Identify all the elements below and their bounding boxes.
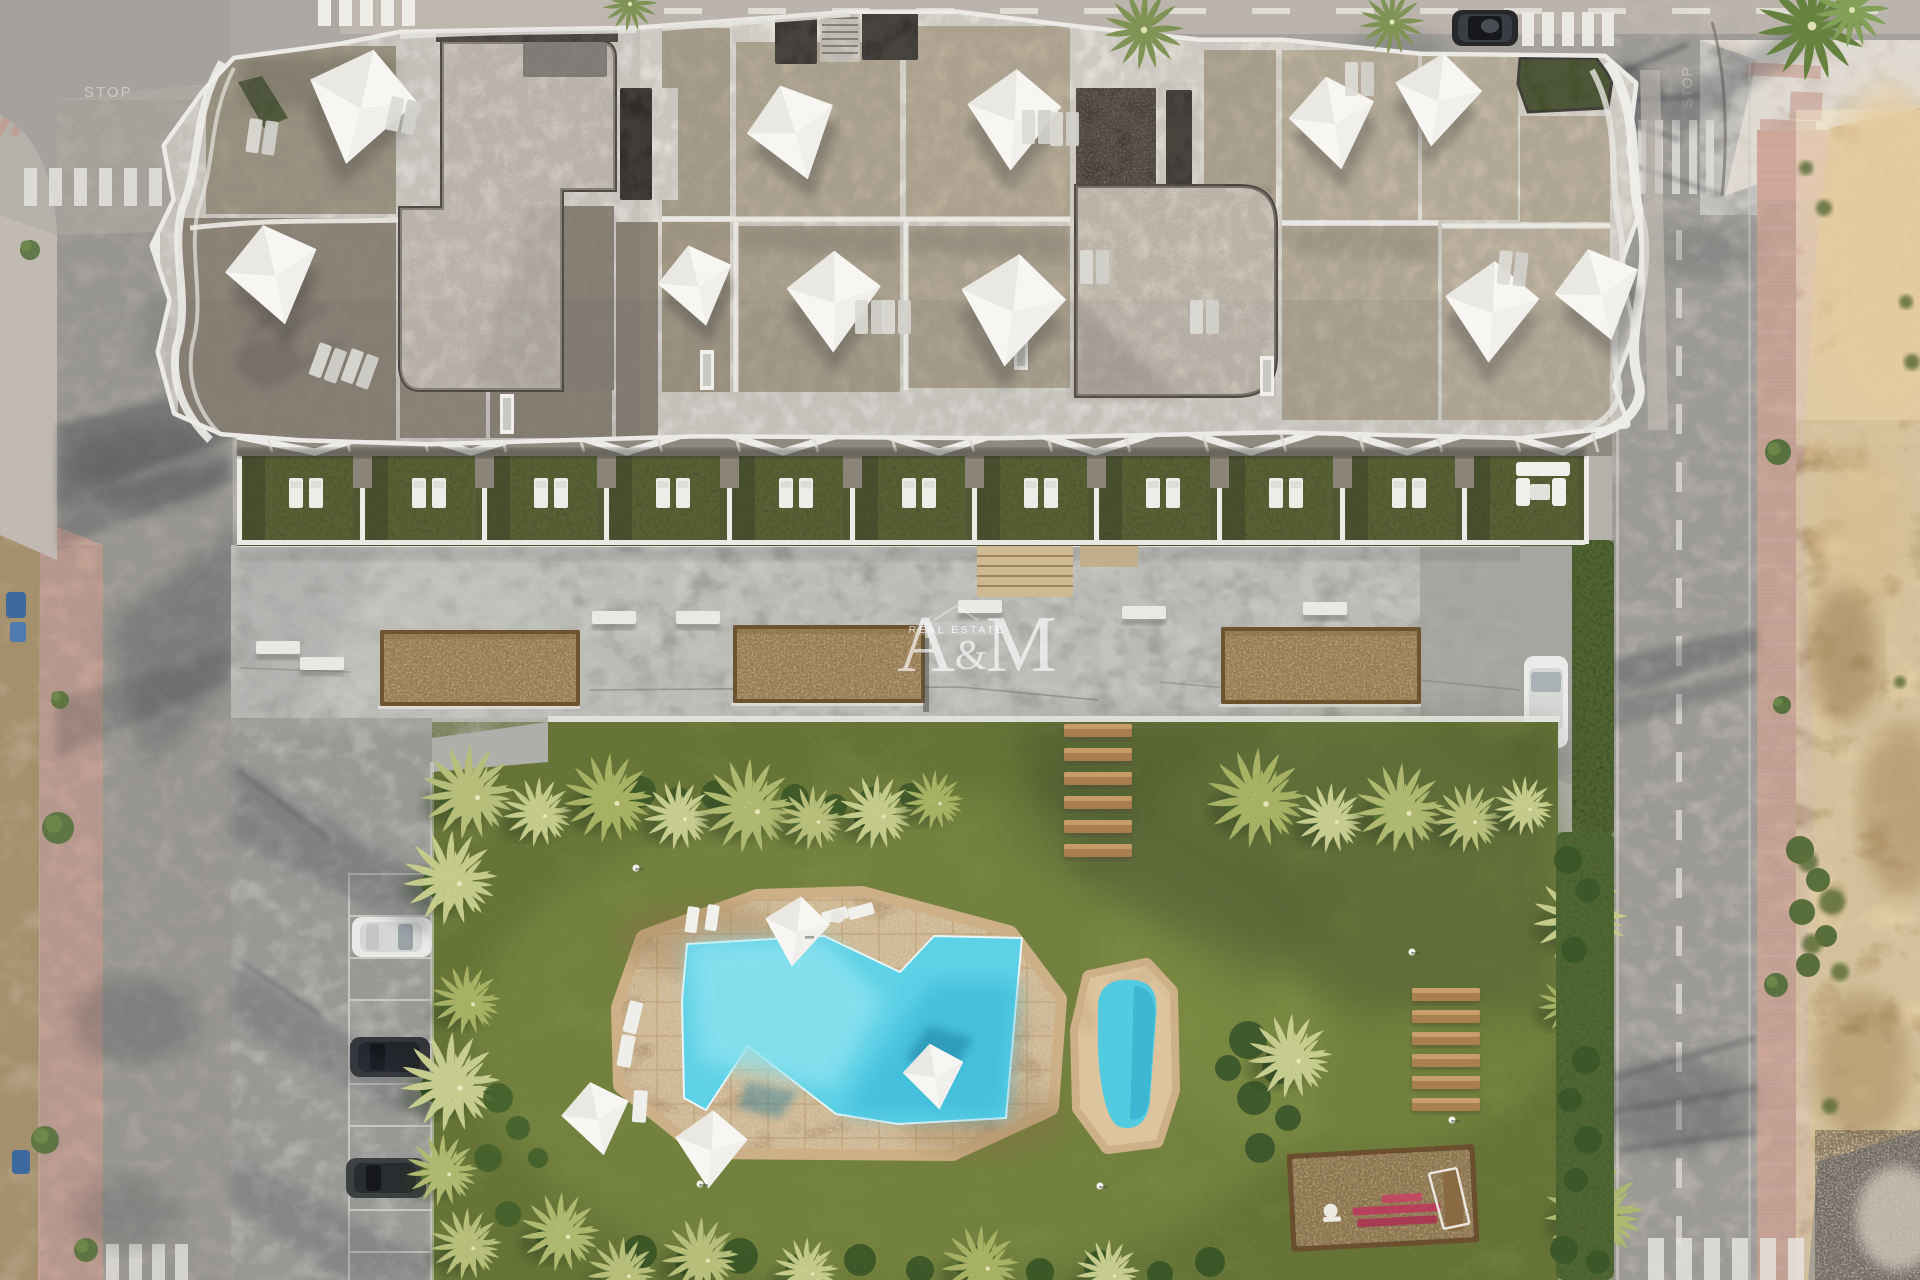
svg-text:STOP: STOP	[84, 84, 133, 101]
